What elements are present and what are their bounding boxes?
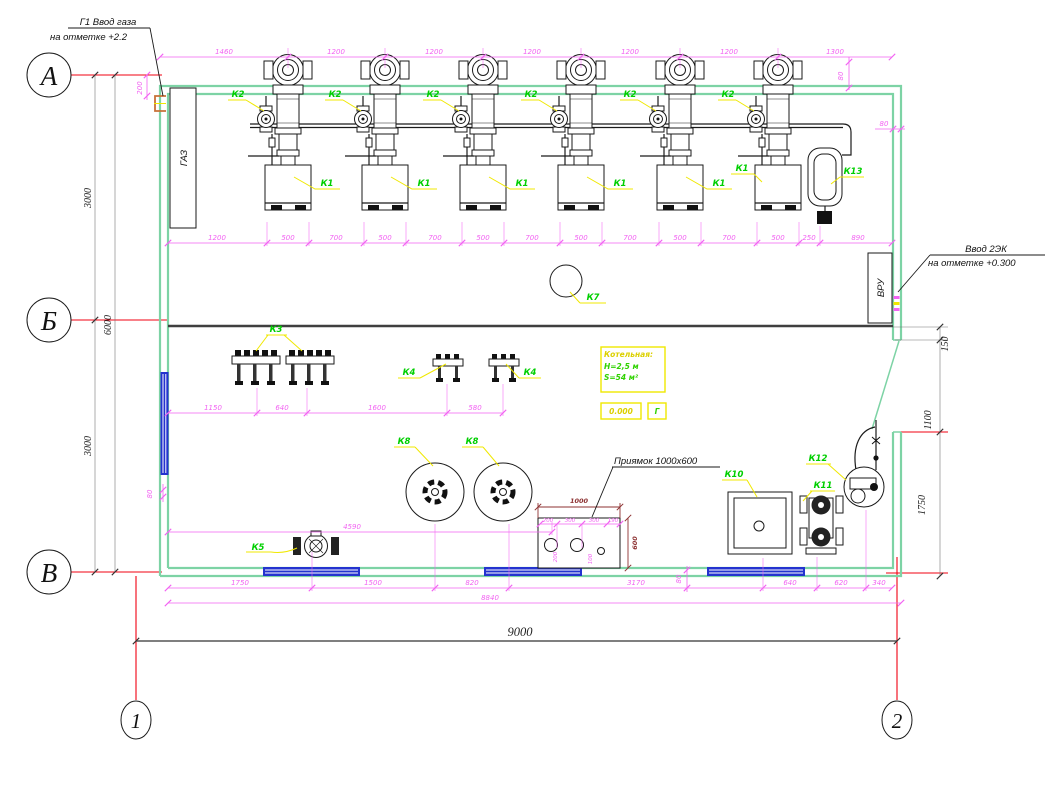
- dim-label: 200: [543, 518, 554, 524]
- equipment-label-k1: К1: [418, 179, 431, 189]
- equipment-k12: [844, 420, 884, 507]
- gas-entry-text-1: Г1 Ввод газа: [80, 17, 137, 28]
- dim-label: 500: [378, 234, 392, 242]
- equipment-label-k2: К2: [427, 90, 440, 100]
- dim-label: 500: [476, 234, 490, 242]
- gas-riser-box: ГАЗ: [170, 88, 196, 228]
- annotations-layer: Г1 Ввод газа на отметке +2.2 Ввод 2ЭК на…: [50, 17, 1045, 517]
- dim-label: 300: [565, 518, 576, 524]
- dim-label: 500: [281, 234, 295, 242]
- boiler-4: [541, 55, 605, 211]
- dim-label: 700: [623, 234, 637, 242]
- equipment-label-k8: К8: [398, 437, 411, 447]
- dim-label: 1100: [923, 410, 934, 429]
- dim-label: 700: [525, 234, 539, 242]
- equipment-k7: [550, 265, 582, 297]
- elec-entry-text-1: Ввод 2ЭК: [965, 244, 1008, 255]
- dim-label: 620: [834, 579, 848, 587]
- dim-label: 8840: [481, 594, 499, 602]
- equipment-label-k1: К1: [614, 179, 627, 189]
- dim-label: 150: [940, 337, 951, 352]
- dim-label: 100: [588, 553, 594, 564]
- equipment-label-k7: К7: [587, 293, 600, 303]
- equipment-label-k1: К1: [516, 179, 529, 189]
- boiler-2: [345, 55, 409, 211]
- axis-label-b: Б: [40, 306, 57, 336]
- dim-label: 1750: [917, 495, 928, 515]
- dim-label: 700: [428, 234, 442, 242]
- pit: [538, 518, 620, 568]
- dim-label: 500: [673, 234, 687, 242]
- boiler-room-plan-drawing: А Б В 1 2 ГАЗ: [0, 0, 1055, 789]
- window-bottom-3: [707, 567, 805, 576]
- dim-label: 1500: [364, 579, 382, 587]
- dim-label: 250: [802, 234, 816, 242]
- equipment-label-k13: К13: [844, 167, 863, 177]
- dim-label: 640: [783, 579, 797, 587]
- dim-label: 80: [880, 120, 889, 128]
- dim-label: 80: [837, 71, 845, 80]
- dim-label: 1200: [621, 48, 639, 56]
- window-bottom-1: [263, 567, 360, 576]
- axis-label-2: 2: [892, 709, 903, 733]
- gas-riser-label: ГАЗ: [179, 150, 190, 166]
- level-mark: 0.000 Г: [601, 403, 666, 419]
- dim-label: 700: [722, 234, 736, 242]
- equipment-label-k2: К2: [722, 90, 735, 100]
- dim-label: 600: [631, 536, 639, 550]
- boiler-3: [443, 55, 507, 211]
- equipment-label-k2: К2: [525, 90, 538, 100]
- dim-label: 1200: [523, 48, 541, 56]
- dim-label: 3000: [83, 436, 94, 457]
- equipment-k3: [232, 350, 334, 385]
- dim-label: 200: [136, 81, 144, 95]
- dim-label: 300: [589, 518, 600, 524]
- dim-label: 1000: [570, 497, 589, 505]
- boiler-6: [738, 55, 802, 211]
- dim-label: 1200: [327, 48, 345, 56]
- equipment-label-k3: К3: [270, 325, 283, 335]
- equipment-k13: [808, 148, 842, 224]
- elec-entry-callout: Ввод 2ЭК на отметке +0.300: [898, 244, 1045, 292]
- dim-label: 640: [275, 404, 289, 412]
- vru-label: ВРУ: [876, 278, 887, 297]
- level-value: 0.000: [609, 407, 633, 416]
- dim-label: 1460: [215, 48, 233, 56]
- equipment-label-k5: К5: [252, 543, 265, 553]
- dim-label: 580: [468, 404, 482, 412]
- equipment-label-k8: К8: [466, 437, 479, 447]
- equipment-label-k12: К12: [809, 454, 828, 464]
- dim-label: 1200: [208, 234, 226, 242]
- equipment-labels: К2 К2 К2 К2 К2 К2 К1 К1 К1 К1 К1 К1 К13 …: [228, 90, 864, 553]
- dim-label: 3000: [83, 188, 94, 209]
- dim-label: 890: [851, 234, 865, 242]
- vru-box: ВРУ: [868, 253, 900, 323]
- equipment-label-k11: К11: [814, 481, 833, 491]
- door-leaf: [872, 341, 899, 429]
- dim-label: 1600: [368, 404, 386, 412]
- window-left: [161, 372, 169, 475]
- equipment-k11: [800, 496, 843, 555]
- dim-label: 9000: [508, 625, 534, 639]
- boiler-5: [640, 55, 704, 211]
- equipment-k5: [293, 531, 339, 558]
- axis-label-a: А: [39, 61, 58, 91]
- equipment-label-k1: К1: [713, 179, 726, 189]
- dim-label: 80: [675, 574, 683, 583]
- equipment-k4: [433, 354, 519, 382]
- note-height: H=2,5 м: [604, 362, 639, 371]
- equipment-k8: [406, 463, 532, 521]
- equipment-label-k1: К1: [736, 164, 749, 174]
- room-note: Котельная: H=2,5 м S=54 м²: [601, 347, 665, 392]
- note-title: Котельная:: [604, 350, 653, 359]
- equipment-k10: [728, 492, 792, 554]
- dim-label: 1750: [231, 579, 249, 587]
- gas-entry-text-2: на отметке +2.2: [50, 32, 128, 43]
- equipment-label-k2: К2: [232, 90, 245, 100]
- dim-label: 340: [872, 579, 886, 587]
- dim-label: 1300: [826, 48, 844, 56]
- dim-label: 500: [574, 234, 588, 242]
- equipment-label-k2: К2: [329, 90, 342, 100]
- dim-label: 190: [608, 518, 619, 524]
- equipment-label-k4: К4: [524, 368, 537, 378]
- dim-label: 1200: [425, 48, 443, 56]
- note-area: S=54 м²: [604, 373, 639, 382]
- dim-label: 200: [553, 551, 559, 562]
- dim-label: 4590: [343, 523, 361, 531]
- dim-label: 500: [771, 234, 785, 242]
- dim-label: 80: [146, 489, 154, 498]
- boiler-1: [248, 55, 312, 211]
- axis-label-v: В: [41, 558, 58, 588]
- equipment-layer: ГАЗ ВРУ: [154, 55, 900, 569]
- pit-label-text: Приямок 1000x600: [614, 456, 698, 467]
- dim-label: 1200: [720, 48, 738, 56]
- pit-callout: Приямок 1000x600: [592, 456, 720, 517]
- dim-label: 6000: [103, 315, 114, 335]
- equipment-label-k2: К2: [624, 90, 637, 100]
- plan-canvas: А Б В 1 2 ГАЗ: [0, 0, 1055, 789]
- equipment-label-k10: К10: [725, 470, 744, 480]
- dim-label: 820: [465, 579, 479, 587]
- elec-entry-text-2: на отметке +0.300: [928, 258, 1016, 269]
- dim-label: 1150: [204, 404, 222, 412]
- dim-label: 700: [329, 234, 343, 242]
- equipment-label-k4: К4: [403, 368, 416, 378]
- dim-label: 3170: [627, 579, 645, 587]
- equipment-label-k1: К1: [321, 179, 334, 189]
- axis-label-1: 1: [131, 709, 142, 733]
